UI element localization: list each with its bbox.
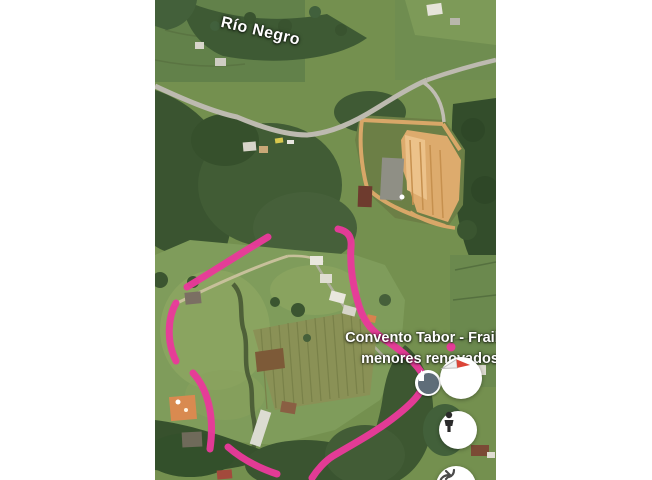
street-view-person-icon (439, 411, 459, 433)
compass-button[interactable] (440, 357, 482, 399)
compass-needle-icon (439, 355, 472, 374)
convent-icon (415, 370, 428, 383)
screenshot-root: Río Negro Convento Tabor - Frailes menor… (0, 0, 652, 480)
map-canvas[interactable]: Río Negro Convento Tabor - Frailes menor… (155, 0, 496, 480)
convent-marker-circle (418, 373, 439, 394)
street-view-button[interactable] (439, 411, 477, 449)
satellite-imagery (155, 0, 496, 480)
annotation-dot (447, 343, 456, 352)
route-icon (436, 466, 458, 480)
left-margin (0, 0, 155, 480)
right-margin (496, 0, 652, 480)
convent-poi-marker[interactable] (415, 370, 441, 396)
